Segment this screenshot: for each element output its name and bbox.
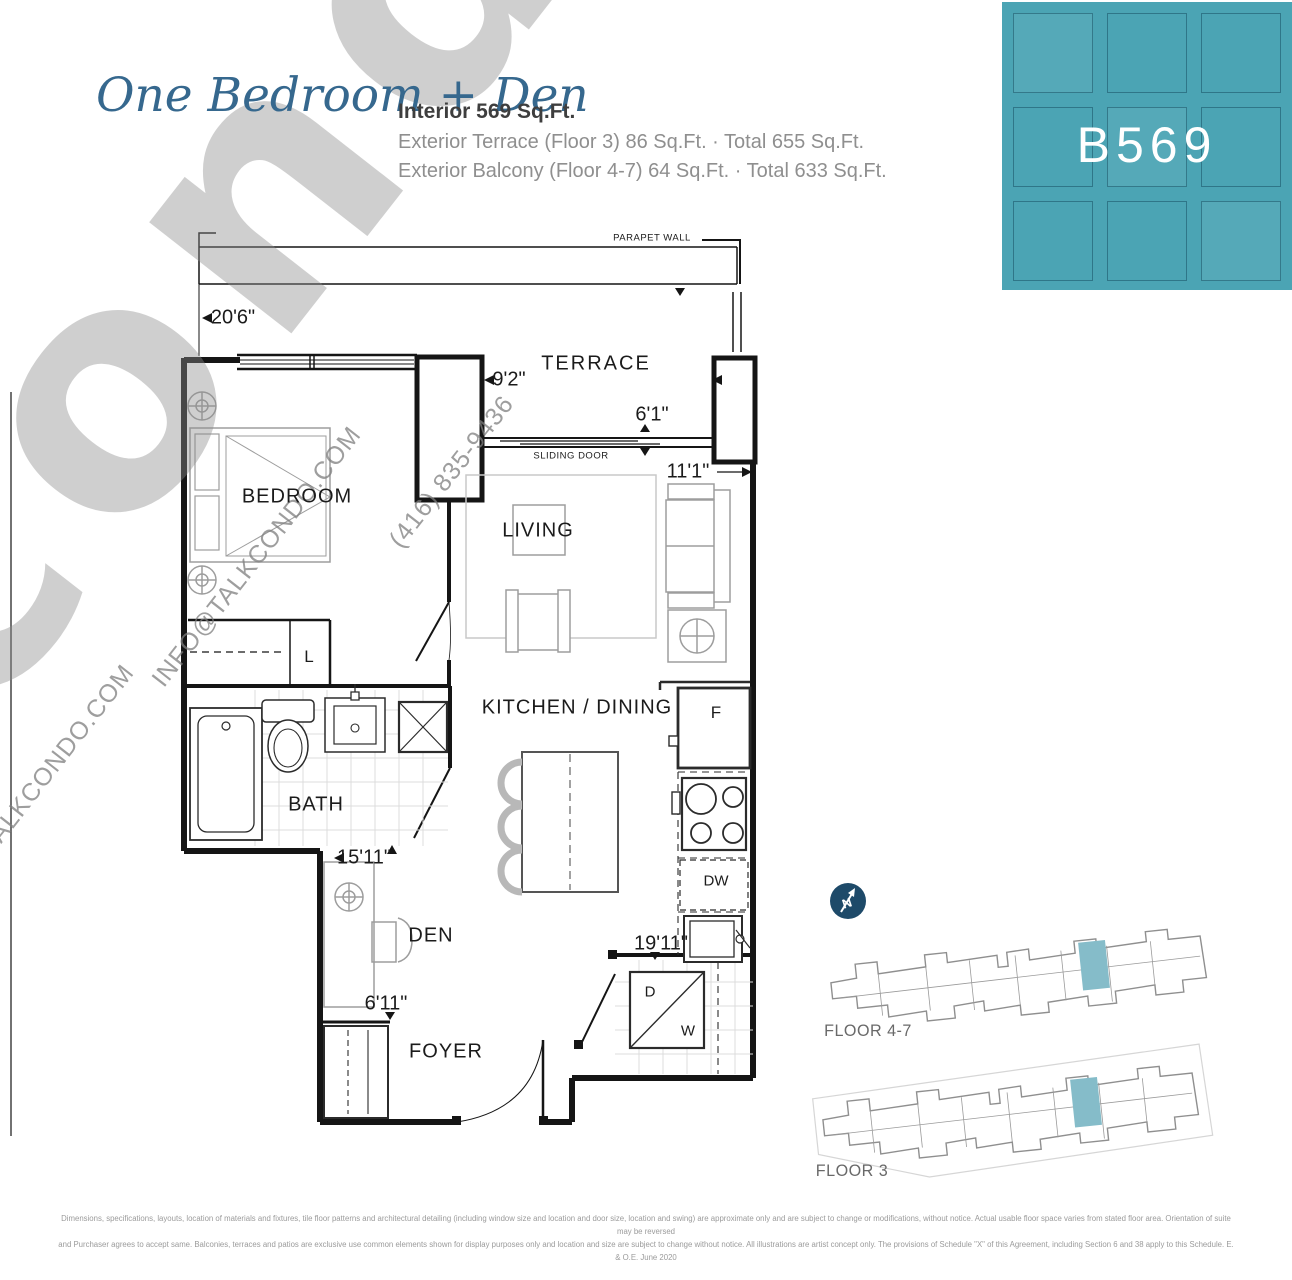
den-desk	[324, 862, 374, 1007]
shower-shaft	[399, 702, 447, 752]
den-label: DEN	[408, 925, 453, 948]
highlighted-unit-floor3	[1070, 1077, 1102, 1128]
island-stools	[501, 762, 522, 892]
dim-living-width: 11'1"	[667, 461, 710, 484]
dim-sliding-door: 6'1"	[635, 404, 668, 427]
bath-door	[414, 768, 450, 838]
bath-vanity-sink	[325, 684, 385, 752]
bedroom-label: BEDROOM	[242, 486, 352, 509]
exterior-balcony-area: Exterior Balcony (Floor 4-7) 64 Sq.Ft. ·…	[398, 160, 887, 183]
dim-terrace-width: 20'6"	[211, 307, 255, 330]
unit-code: B569	[1077, 116, 1218, 174]
dryer-label: D	[645, 984, 656, 1001]
den-chair	[372, 918, 412, 962]
badge-grid-cell	[1201, 201, 1281, 281]
kitchen-island	[501, 752, 618, 892]
floorplan-page: condo (416) 835-9436 INFO@TALKCONDO.COM …	[0, 0, 1292, 1280]
floor-3-label: FLOOR 3	[816, 1161, 888, 1181]
kitchen-sink	[684, 916, 750, 962]
kitchen-dining-label: KITCHEN / DINING	[482, 697, 672, 720]
fridge-label: F	[711, 703, 721, 723]
exterior-terrace-area: Exterior Terrace (Floor 3) 86 Sq.Ft. · T…	[398, 131, 887, 154]
disclaimer: Dimensions, specifications, layouts, loc…	[56, 1212, 1236, 1264]
badge-grid-cell	[1013, 201, 1093, 281]
floor-4-7-label: FLOOR 4-7	[824, 1021, 912, 1041]
disclaimer-line-1: Dimensions, specifications, layouts, loc…	[56, 1212, 1236, 1238]
badge-grid-cell	[1201, 13, 1281, 93]
dim-den-width: 6'11"	[365, 993, 408, 1016]
linen-closet-label: L	[304, 647, 313, 667]
key-plan-floor47	[829, 926, 1208, 1035]
interior-area: Interior 569 Sq.Ft.	[398, 100, 887, 124]
bathtub	[190, 708, 262, 840]
cooktop	[672, 778, 746, 850]
living-label: LIVING	[502, 520, 574, 543]
fridge	[660, 682, 750, 768]
highlighted-unit-floor47	[1078, 940, 1110, 991]
side-table-lamp	[668, 610, 726, 662]
sofa	[666, 484, 730, 608]
disclaimer-line-2: and Purchaser agrees to accept same. Bal…	[56, 1238, 1236, 1264]
plan-specs: Interior 569 Sq.Ft. Exterior Terrace (Fl…	[398, 100, 887, 189]
entry-closet	[324, 1026, 388, 1118]
dim-unit-width: 15'11"	[337, 847, 391, 870]
armchair	[506, 590, 570, 652]
foyer-label: FOYER	[409, 1041, 483, 1064]
laundry-door	[582, 974, 615, 1042]
washer-label: W	[681, 1023, 695, 1040]
bath-label: BATH	[288, 794, 344, 817]
bedroom-door	[416, 602, 449, 661]
dim-bedroom-wall: 9'2"	[492, 369, 525, 392]
sliding-door-label: SLIDING DOOR	[533, 451, 608, 462]
terrace-label: TERRACE	[541, 353, 651, 376]
badge-grid-cell	[1013, 13, 1093, 93]
parapet-wall-label: PARAPET WALL	[613, 233, 691, 244]
badge-grid-cell	[1107, 13, 1187, 93]
dim-unit-depth: 19'11"	[634, 933, 688, 956]
dishwasher-label: DW	[704, 873, 729, 890]
toilet	[262, 700, 314, 772]
badge-grid-cell	[1107, 201, 1187, 281]
unit-badge: B569	[1002, 2, 1292, 290]
